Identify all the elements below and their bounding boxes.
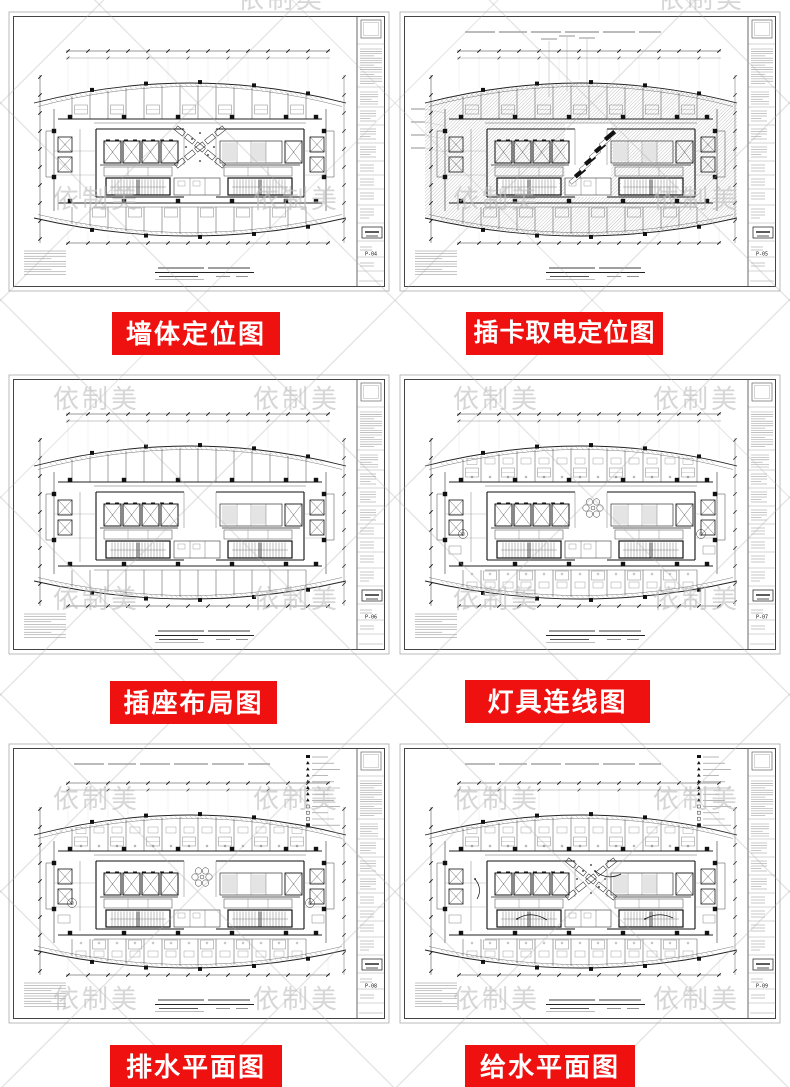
floor-plan-drawing: P-07 xyxy=(399,374,781,655)
svg-text:P-08: P-08 xyxy=(365,984,377,990)
plan-label-text: 插卡取电定位图 xyxy=(473,321,655,346)
plan-label-text: 墙体定位图 xyxy=(126,321,266,347)
svg-text:P-07: P-07 xyxy=(756,615,768,621)
floor-plan-drawing: P-06 xyxy=(8,374,390,655)
floor-plan-panel-water-supply: P-09 xyxy=(399,743,781,1024)
plan-label-banner: 插卡取电定位图 xyxy=(466,312,663,355)
floor-plan-panel-lighting: P-07 xyxy=(399,374,781,655)
catalog-page: P-04 P-05 P-06 P-07 P-08 P-09 墙体定位图 插卡取电… xyxy=(0,0,790,1087)
floor-plan-drawing: P-05 xyxy=(399,11,781,292)
plan-label-text: 灯具连线图 xyxy=(487,689,627,715)
plan-label-text: 排水平面图 xyxy=(126,1054,266,1080)
plan-label-banner: 给水平面图 xyxy=(465,1045,635,1087)
floor-plan-panel-wall-positioning: P-04 xyxy=(8,11,390,292)
svg-text:P-05: P-05 xyxy=(756,252,768,258)
svg-text:P-09: P-09 xyxy=(756,984,768,990)
plan-label-banner: 排水平面图 xyxy=(110,1045,282,1087)
svg-text:P-04: P-04 xyxy=(365,252,377,258)
floor-plan-drawing: P-08 xyxy=(8,743,390,1024)
plan-label-banner: 插座布局图 xyxy=(110,681,277,724)
floor-plan-drawing: P-04 xyxy=(8,11,390,292)
plan-label-banner: 墙体定位图 xyxy=(112,312,280,355)
floor-plan-panel-drainage: P-08 xyxy=(8,743,390,1024)
svg-text:P-06: P-06 xyxy=(365,615,377,621)
plan-label-banner: 灯具连线图 xyxy=(465,680,650,723)
floor-plan-drawing: P-09 xyxy=(399,743,781,1024)
plan-label-text: 插座布局图 xyxy=(123,690,263,716)
floor-plan-panel-socket-layout: P-06 xyxy=(8,374,390,655)
plan-label-text: 给水平面图 xyxy=(480,1054,620,1080)
floor-plan-panel-card-power: P-05 xyxy=(399,11,781,292)
